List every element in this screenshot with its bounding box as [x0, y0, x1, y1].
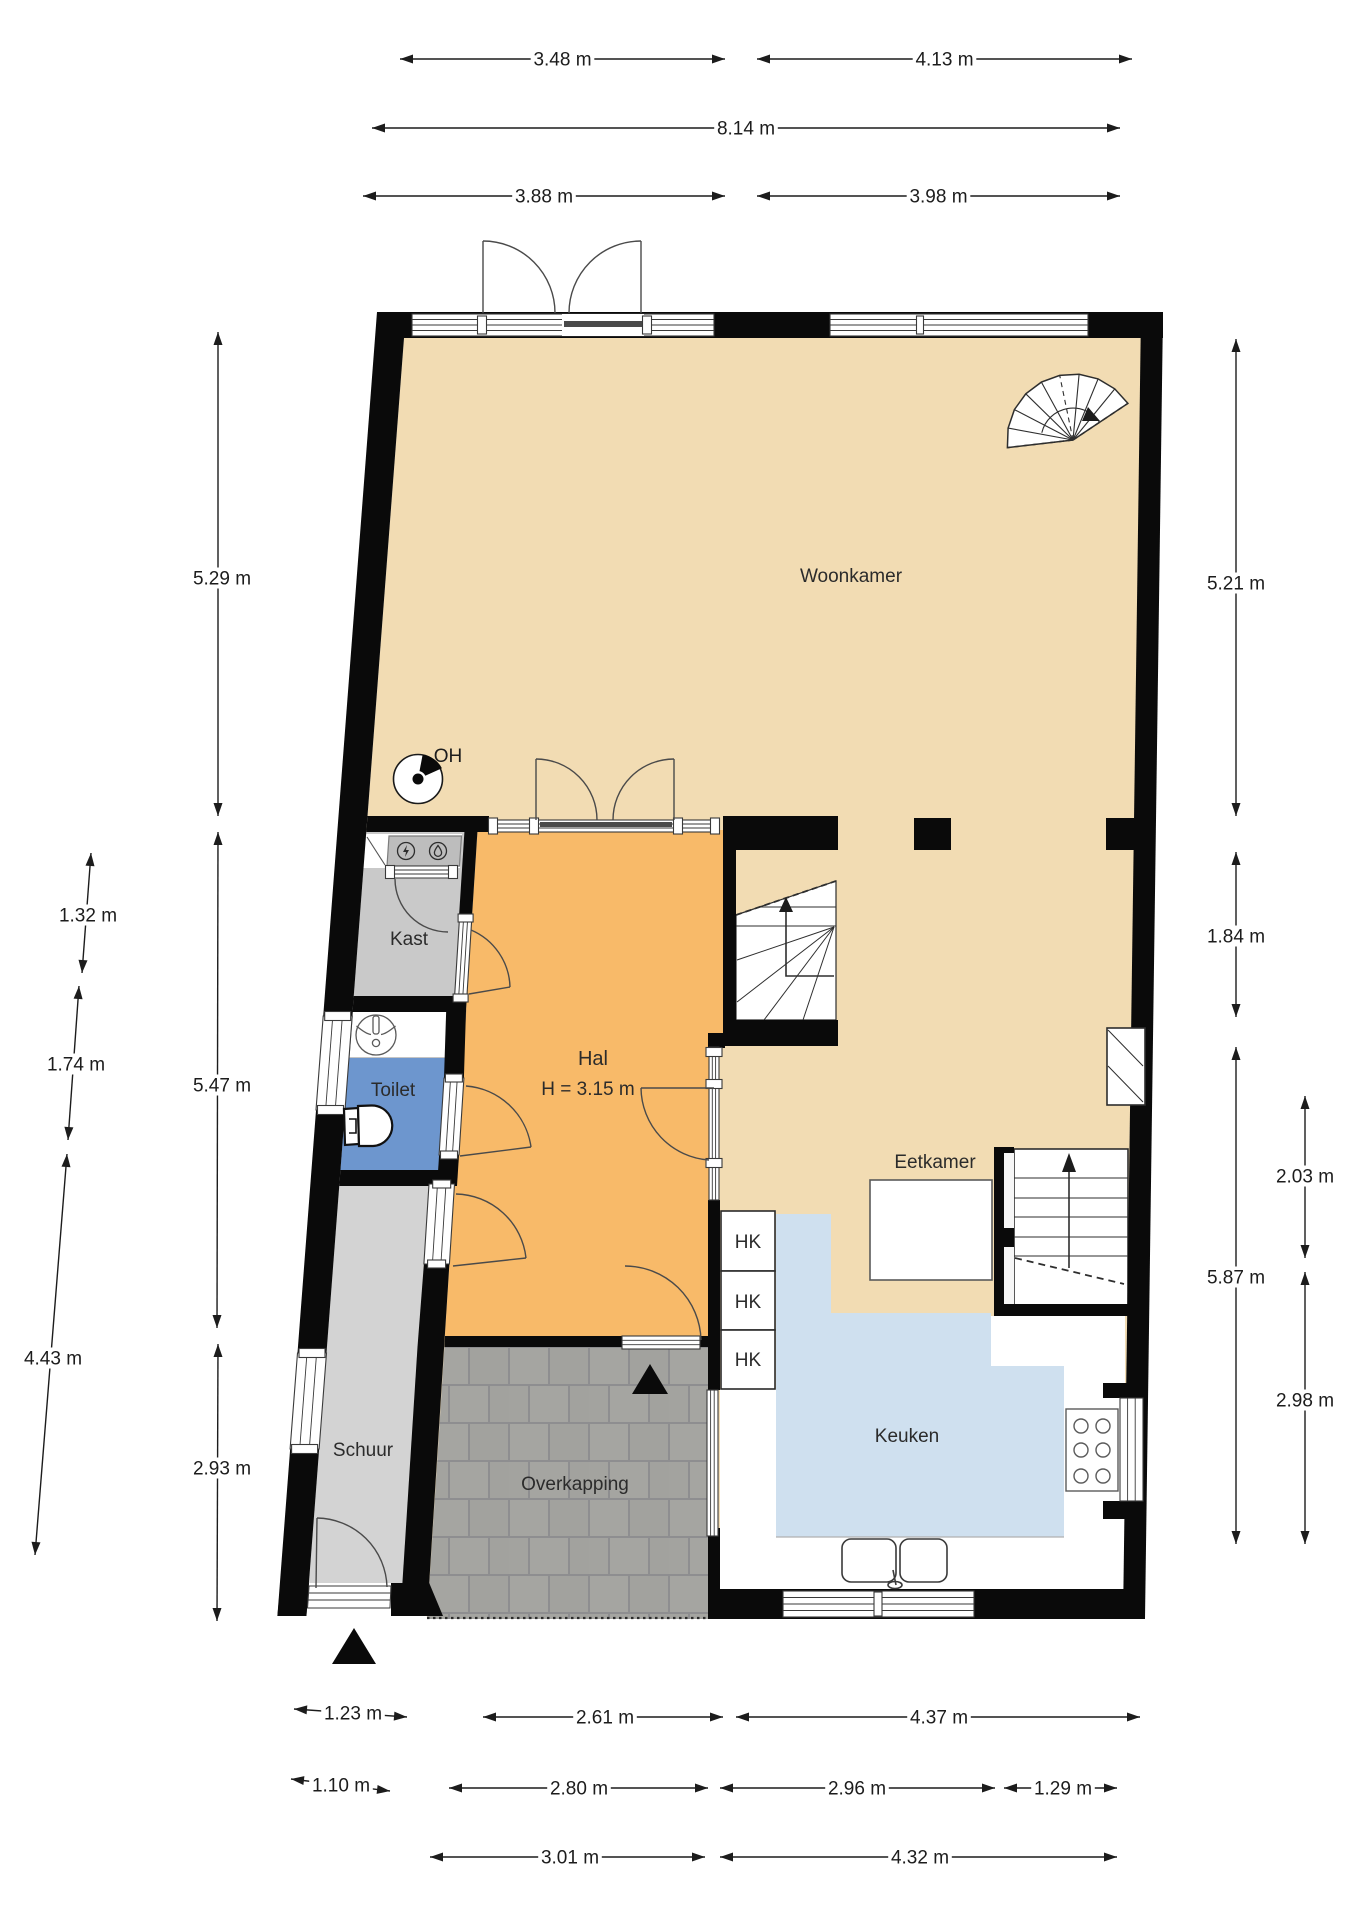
svg-text:H = 3.15 m: H = 3.15 m: [541, 1079, 634, 1100]
svg-text:1.29 m: 1.29 m: [1034, 1779, 1092, 1800]
svg-text:Eetkamer: Eetkamer: [894, 1152, 976, 1173]
svg-text:Overkapping: Overkapping: [521, 1474, 629, 1495]
svg-text:3.88 m: 3.88 m: [515, 187, 573, 208]
svg-text:1.32 m: 1.32 m: [59, 906, 117, 927]
svg-text:5.87 m: 5.87 m: [1207, 1268, 1265, 1289]
svg-text:Hal: Hal: [578, 1048, 608, 1070]
svg-text:Kast: Kast: [390, 929, 429, 950]
svg-text:3.01 m: 3.01 m: [541, 1848, 599, 1869]
svg-text:Keuken: Keuken: [875, 1426, 939, 1447]
svg-text:3.48 m: 3.48 m: [533, 50, 591, 71]
svg-text:2.03 m: 2.03 m: [1276, 1167, 1334, 1188]
svg-text:Woonkamer: Woonkamer: [800, 566, 903, 587]
svg-text:2.96 m: 2.96 m: [828, 1779, 886, 1800]
svg-text:Schuur: Schuur: [333, 1440, 394, 1461]
svg-text:2.93 m: 2.93 m: [193, 1459, 251, 1480]
svg-text:1.84 m: 1.84 m: [1207, 927, 1265, 948]
svg-text:Toilet: Toilet: [371, 1080, 416, 1101]
svg-text:OH: OH: [434, 746, 463, 767]
svg-text:2.98 m: 2.98 m: [1276, 1391, 1334, 1412]
svg-text:2.80 m: 2.80 m: [550, 1779, 608, 1800]
svg-text:4.43 m: 4.43 m: [24, 1349, 82, 1370]
svg-text:5.21 m: 5.21 m: [1207, 574, 1265, 595]
svg-text:8.14 m: 8.14 m: [717, 119, 775, 140]
svg-text:4.37 m: 4.37 m: [910, 1708, 968, 1729]
svg-text:4.13 m: 4.13 m: [915, 50, 973, 71]
svg-text:1.10 m: 1.10 m: [312, 1776, 370, 1797]
svg-text:4.32 m: 4.32 m: [891, 1848, 949, 1869]
svg-text:5.47 m: 5.47 m: [193, 1076, 251, 1097]
svg-text:3.98 m: 3.98 m: [909, 187, 967, 208]
svg-text:2.61 m: 2.61 m: [576, 1708, 634, 1729]
svg-text:HK: HK: [735, 1292, 762, 1313]
svg-text:1.74 m: 1.74 m: [47, 1055, 105, 1076]
svg-text:1.23 m: 1.23 m: [324, 1704, 382, 1725]
svg-text:HK: HK: [735, 1350, 762, 1371]
svg-text:HK: HK: [735, 1232, 762, 1253]
svg-text:5.29 m: 5.29 m: [193, 569, 251, 590]
